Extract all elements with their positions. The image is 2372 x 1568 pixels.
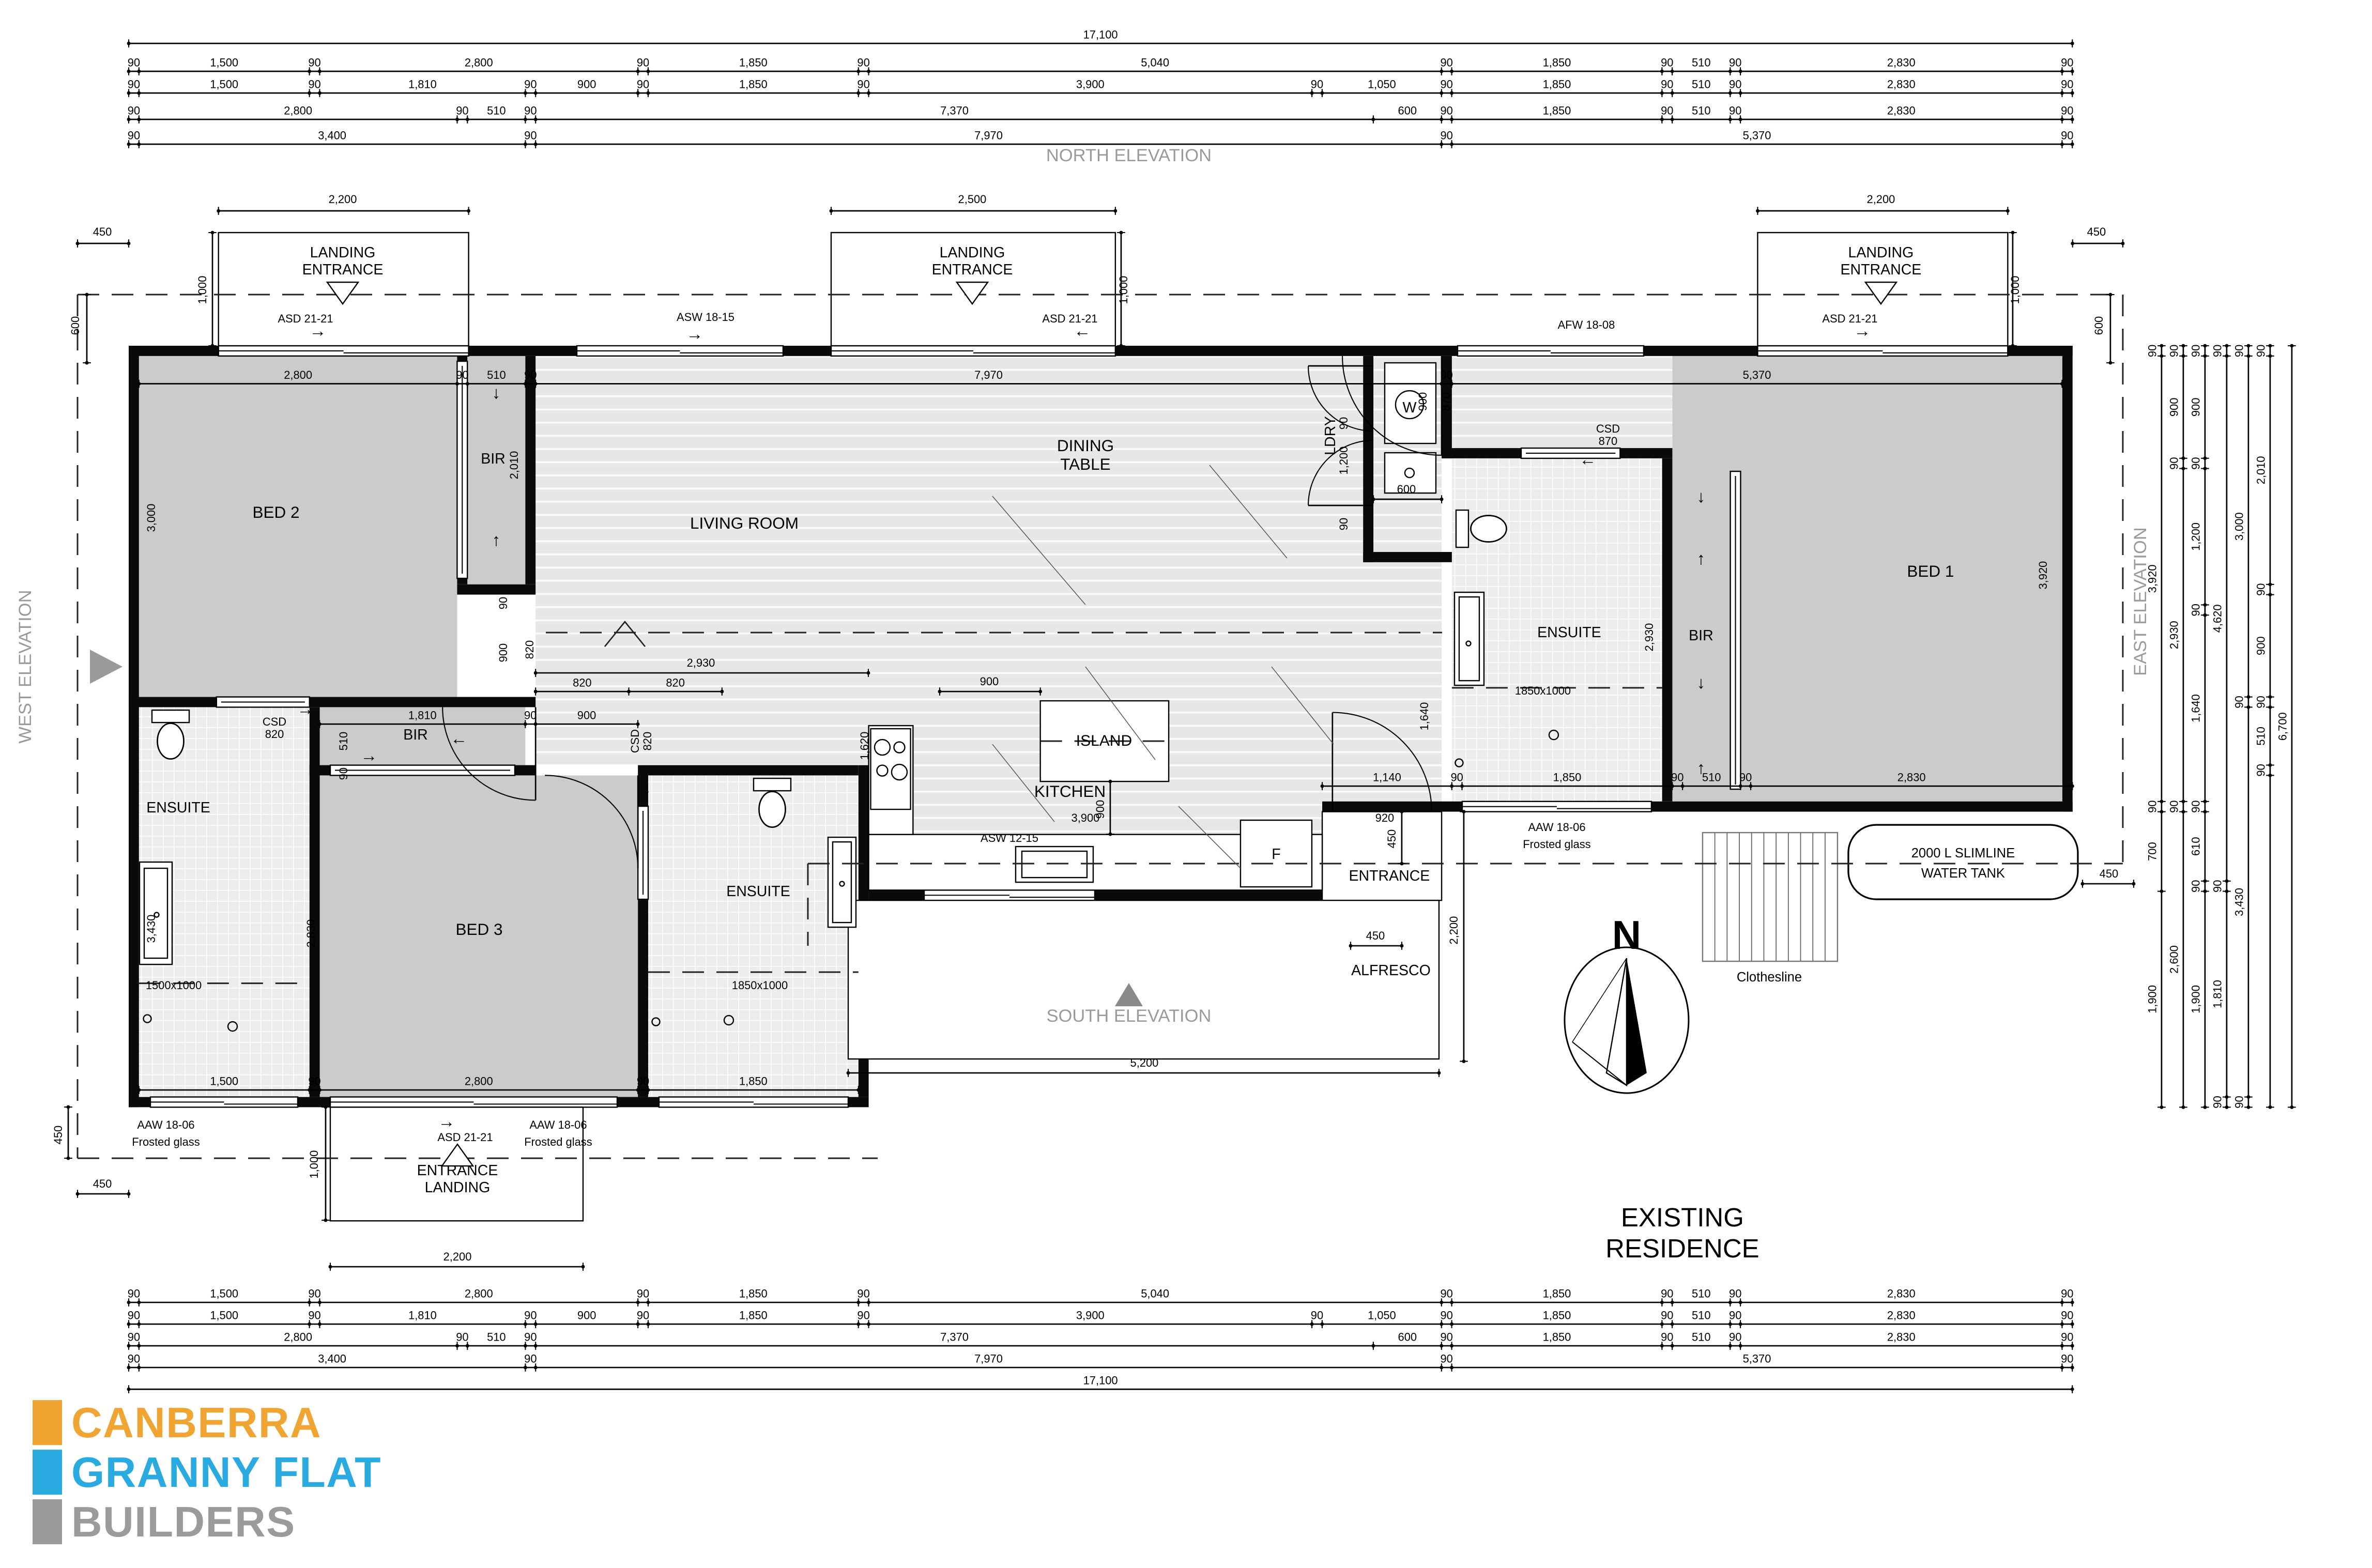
- dim-label: 900: [577, 78, 596, 90]
- water-tank-label: 2000 L SLIMLINE: [1911, 846, 2015, 860]
- annotation-label: ENTRANCE: [302, 262, 384, 278]
- carpet-floor: [139, 356, 457, 697]
- dim-label: 90: [2190, 604, 2202, 616]
- dim-label: 1,500: [210, 78, 238, 90]
- dim-label: 90: [1441, 78, 1453, 90]
- dim-label: 5,040: [1141, 1287, 1169, 1300]
- dim-label: 90: [456, 368, 468, 381]
- dim-label: 90: [524, 78, 537, 90]
- dim-label: 900: [2190, 398, 2202, 417]
- dim-label: 900: [577, 709, 596, 721]
- dim-label: 90: [128, 1309, 140, 1321]
- annotation-label: 900: [1094, 800, 1107, 819]
- door-code-asd2121-bottom: ASD 21-21: [437, 1131, 493, 1144]
- south-elevation-label: SOUTH ELEVATION: [1047, 1006, 1212, 1026]
- dim-label: 90: [857, 78, 869, 90]
- wall: [648, 765, 859, 776]
- entrance-slab: [1322, 812, 1442, 901]
- dim-label: 1,850: [739, 1074, 768, 1087]
- window-code-aaw1806-2: AAW 18-06: [529, 1118, 587, 1131]
- toilet-tank-ens2: [1456, 510, 1468, 547]
- dim-label: 90: [2061, 1287, 2073, 1300]
- logo-text-line3: BUILDERS: [71, 1498, 296, 1546]
- annotation-label: Frosted glass: [132, 1135, 200, 1148]
- dim-label: 600: [1398, 1330, 1417, 1343]
- dim-label: 90: [308, 1287, 320, 1300]
- dim-label: 90: [2061, 1309, 2073, 1321]
- dim-label: 7,970: [974, 368, 1003, 381]
- annotation-label: ↓: [492, 383, 500, 402]
- annotation-label: ↓: [1697, 487, 1705, 506]
- dim-label: 1,810: [408, 709, 437, 721]
- dim-label: 90: [308, 1074, 320, 1087]
- dim-label: 7,370: [940, 1330, 969, 1343]
- dim-label: 2,800: [465, 1074, 493, 1087]
- wall: [525, 356, 535, 585]
- dim-label: 90: [2168, 457, 2181, 469]
- dim-label: 90: [128, 1287, 140, 1300]
- logo-square-gray: [33, 1499, 62, 1544]
- annotation-label: 3,920: [2037, 561, 2049, 590]
- dim-label: 7,970: [974, 1352, 1003, 1365]
- annotation-label: 450: [1366, 929, 1385, 942]
- dim-label: 6,700: [2276, 712, 2289, 741]
- room-label-ensuite2: ENSUITE: [1537, 624, 1601, 641]
- annotation-label: 90: [337, 767, 350, 780]
- dim-label: 2,010: [2255, 456, 2268, 484]
- dim-label: 90: [524, 129, 537, 142]
- dim-label: 1,850: [739, 56, 768, 69]
- annotation-label: ↑: [1697, 758, 1705, 777]
- water-tank: [1848, 825, 2078, 899]
- dim-label: 90: [2190, 801, 2202, 813]
- dim-label: 1,900: [2146, 985, 2159, 1013]
- annotation-label: 900: [497, 643, 510, 663]
- dim-label: 90: [637, 78, 649, 90]
- annotation-label: 2,200: [329, 193, 357, 206]
- wall: [2062, 346, 2073, 812]
- dim-label: 90: [1441, 1330, 1453, 1343]
- dim-label: 1,500: [210, 56, 238, 69]
- annotation-label: 3,000: [145, 504, 158, 532]
- annotation-label: →: [1854, 321, 1871, 340]
- dim-label: 90: [2061, 56, 2073, 69]
- dim-label: 90: [2190, 880, 2202, 893]
- annotation-label: →: [360, 746, 377, 765]
- dim-label: 90: [1661, 1309, 1673, 1321]
- dim-label: 90: [2233, 696, 2246, 708]
- annotation-label: 90: [1337, 417, 1350, 429]
- dim-label: 90: [1311, 1309, 1323, 1321]
- room-label-kitchen: KITCHEN: [1034, 782, 1106, 801]
- vanity-ens3-basin: [833, 842, 851, 923]
- annotation-label: 1,200: [1337, 447, 1350, 475]
- water-tank-label2: WATER TANK: [1921, 866, 2005, 881]
- dim-label: 90: [456, 104, 468, 117]
- annotation-label: ←: [450, 729, 467, 748]
- room-label-laundry: LDRY: [1322, 416, 1339, 455]
- existing-residence-label2: RESIDENCE: [1605, 1234, 1759, 1263]
- dim-label: 90: [2255, 764, 2268, 776]
- clothesline: [1703, 833, 1838, 961]
- annotation-label: →: [309, 321, 326, 340]
- dim-label: 5,040: [1141, 56, 1169, 69]
- annotation-label: 1,000: [308, 1150, 320, 1179]
- dim-label: 4,620: [2211, 604, 2224, 633]
- dim-label: 90: [1661, 1287, 1673, 1300]
- dim-label: 90: [857, 56, 869, 69]
- annotation-label: →: [438, 1112, 455, 1131]
- annotation-label: 600: [2092, 316, 2105, 335]
- dim-label: 1,810: [408, 78, 437, 90]
- dim-label: 90: [308, 1309, 320, 1321]
- dim-label: 90: [1661, 78, 1673, 90]
- dim-label: 1,500: [210, 1287, 238, 1300]
- dim-label: 900: [577, 1309, 596, 1321]
- annotation-label: 1,000: [2009, 276, 2022, 304]
- dim-label: 510: [1692, 56, 1711, 69]
- window-code-asw1215: ASW 12-15: [981, 832, 1038, 844]
- dim-label: 90: [524, 709, 537, 721]
- east-elevation-label: EAST ELEVATION: [2131, 527, 2150, 676]
- dim-label: 510: [1692, 1287, 1711, 1300]
- vanity-ens2-basin: [1459, 597, 1479, 681]
- dim-label: 90: [2255, 345, 2268, 357]
- door-code-csd820-ens1: CSD: [263, 715, 286, 728]
- dim-label: 510: [487, 368, 506, 381]
- dim-label: 900: [2168, 398, 2181, 417]
- floor-plan-drawing: 17,100901,500902,800901,850905,040901,85…: [0, 0, 2372, 1568]
- annotation-label: 450: [52, 1126, 65, 1145]
- dim-label: 1,850: [1553, 771, 1582, 783]
- toilet-tank-ens3: [754, 778, 791, 791]
- dim-label: 90: [2233, 1096, 2246, 1108]
- toilet-bowl-ens2: [1471, 516, 1506, 542]
- wall: [1363, 356, 1373, 562]
- dim-label: 900: [2255, 636, 2268, 655]
- dim-label: 90: [857, 1309, 869, 1321]
- dim-label: 90: [637, 1287, 649, 1300]
- annotation-label: 2,830: [304, 919, 317, 948]
- logo-text-line2: GRANNY FLAT: [71, 1449, 381, 1496]
- dim-label: 820: [573, 676, 592, 689]
- compass-rose: [1565, 947, 1689, 1093]
- dim-label: 7,970: [974, 129, 1003, 142]
- dim-label: 1,200: [2190, 522, 2202, 551]
- wall: [129, 697, 535, 708]
- annotation-label: LANDING: [425, 1179, 491, 1196]
- dim-label: 90: [2211, 880, 2224, 893]
- dim-label: 2,930: [2168, 621, 2181, 649]
- dim-label: 1,850: [1543, 78, 1571, 90]
- dim-label: 90: [2255, 696, 2268, 708]
- dim-label: 90: [1311, 78, 1323, 90]
- west-elevation-triangle: [90, 650, 123, 684]
- dim-label: 90: [2061, 104, 2073, 117]
- window-code-asw1815: ASW 18-15: [677, 311, 734, 324]
- dim-label: 1,850: [1543, 104, 1571, 117]
- annotation-label: 450: [93, 225, 112, 238]
- annotation-label: 1500x1000: [146, 979, 202, 992]
- annotation-label: 2,200: [443, 1250, 472, 1263]
- annotation-label: 2,200: [1447, 916, 1460, 945]
- dim-label: 2,830: [1887, 78, 1916, 90]
- window-code-afw1808: AFW 18-08: [1558, 318, 1615, 331]
- annotation-label: 2,200: [1867, 193, 1895, 206]
- annotation-label: ENTRANCE: [932, 262, 1013, 278]
- annotation-label: 900: [980, 675, 999, 688]
- logo-text-line1: CANBERRA: [71, 1399, 322, 1447]
- dim-label: 1,850: [1543, 1309, 1571, 1321]
- dim-label: 90: [128, 1352, 140, 1365]
- annotation-label: 1,640: [1418, 702, 1431, 731]
- dim-label: 90: [637, 1074, 649, 1087]
- dim-label: 90: [128, 104, 140, 117]
- toilet-bowl-ens1: [157, 724, 183, 759]
- dim-label: 90: [128, 129, 140, 142]
- entrance-label: ENTRANCE: [1349, 868, 1430, 884]
- dim-label: 3,900: [1076, 78, 1105, 90]
- dim-label: 90: [2190, 345, 2202, 357]
- west-elevation-label: WEST ELEVATION: [16, 590, 35, 743]
- annotation-label: 820: [523, 640, 536, 659]
- annotation-label: ↓: [1697, 673, 1705, 692]
- dim-label: 90: [2146, 345, 2159, 357]
- dim-label: 90: [1661, 1330, 1673, 1343]
- dim-label: 1,140: [1373, 771, 1401, 783]
- annotation-label: Frosted glass: [1523, 838, 1590, 851]
- dim-label: 90: [1441, 368, 1453, 381]
- dim-label: 90: [2061, 1330, 2073, 1343]
- dim-label: 1,850: [1543, 1330, 1571, 1343]
- annotation-label: 2,500: [958, 193, 987, 206]
- dim-label: 90: [308, 56, 320, 69]
- existing-residence-label: EXISTING: [1621, 1203, 1744, 1232]
- dim-label: 17,100: [1083, 1374, 1118, 1387]
- annotation-label: ↓: [642, 778, 651, 797]
- dim-label: 2,800: [465, 56, 493, 69]
- tile-floor: [648, 775, 859, 1097]
- dim-label: 7,370: [940, 104, 969, 117]
- door-code-csd870: CSD: [1596, 422, 1620, 435]
- annotation-label: 450: [1385, 829, 1398, 849]
- annotation-label: 5,200: [1130, 1056, 1159, 1069]
- alfresco-slab: [848, 900, 1439, 1059]
- room-label-ensuite3: ENSUITE: [726, 883, 790, 900]
- dim-label: 90: [2061, 1352, 2073, 1365]
- dim-label: 90: [524, 368, 537, 381]
- dim-label: 90: [2211, 345, 2224, 357]
- dim-label: 510: [1692, 1330, 1711, 1343]
- alfresco-label: ALFRESCO: [1351, 962, 1431, 979]
- window-code-aaw1806-1: AAW 18-06: [137, 1118, 194, 1131]
- dim-label: 1,500: [210, 1074, 238, 1087]
- dim-label: 510: [1692, 78, 1711, 90]
- annotation-label: ←: [1074, 321, 1091, 340]
- logo-square-orange: [33, 1400, 62, 1445]
- annotation-label: 600: [69, 316, 82, 335]
- room-label-living: LIVING ROOM: [690, 514, 799, 532]
- dim-label: 90: [308, 78, 320, 90]
- wall: [1322, 802, 2073, 812]
- dim-label: 90: [1729, 56, 1741, 69]
- dim-label: 3,430: [2233, 888, 2246, 916]
- toilet-bowl-ens3: [759, 792, 785, 827]
- landing-entrance-right: LANDING: [1848, 244, 1914, 261]
- north-elevation-label: NORTH ELEVATION: [1046, 146, 1212, 165]
- dim-label: 1,850: [739, 1287, 768, 1300]
- dim-label: 2,600: [2168, 945, 2181, 974]
- robe-label-bir3: BIR: [403, 727, 428, 743]
- annotation-label: →: [297, 699, 314, 718]
- annotation-label: 1,000: [196, 276, 209, 304]
- dim-label: 90: [1441, 1309, 1453, 1321]
- annotation-label: ↑: [492, 530, 500, 549]
- toilet-tank-ens1: [152, 710, 189, 722]
- dim-label: 90: [128, 78, 140, 90]
- dim-label: 1,850: [1543, 1287, 1571, 1300]
- dim-label: 510: [487, 1330, 506, 1343]
- annotation-label: 870: [1599, 435, 1618, 448]
- wall: [1662, 458, 1673, 802]
- dim-label: 2,800: [284, 1330, 312, 1343]
- dim-label: 2,830: [1887, 56, 1916, 69]
- dim-label: 510: [1692, 104, 1711, 117]
- wall: [129, 346, 139, 1107]
- dim-label: 610: [2190, 837, 2202, 856]
- dim-label: 3,000: [2233, 512, 2246, 541]
- window-code-aaw1806-3: AAW 18-06: [1528, 821, 1585, 834]
- annotation-label: 600: [1397, 483, 1416, 496]
- annotation-label: ↑: [1697, 549, 1705, 568]
- robe-label-bir1: BIR: [481, 451, 506, 467]
- dim-label: 1,850: [739, 78, 768, 90]
- clothesline-label: Clothesline: [1737, 970, 1802, 985]
- annotation-label: 1,000: [1117, 276, 1130, 304]
- dim-label: 90: [1739, 771, 1752, 783]
- dim-label: 17,100: [1083, 28, 1118, 41]
- dim-label: 3,400: [318, 1352, 346, 1365]
- dim-label: 90: [524, 1352, 537, 1365]
- annotation-label: 900: [1416, 392, 1429, 411]
- dim-label: 2,800: [284, 104, 312, 117]
- room-label-ensuite1: ENSUITE: [146, 800, 210, 816]
- dim-label: 820: [666, 676, 685, 689]
- dim-label: 90: [456, 1330, 468, 1343]
- annotation-label: 2,010: [508, 451, 521, 480]
- logo-square-blue: [33, 1450, 62, 1495]
- annotation-label: →: [686, 324, 703, 343]
- dim-label: 2,830: [1897, 771, 1926, 783]
- dim-label: 90: [2061, 78, 2073, 90]
- landing-entrance-center: LANDING: [940, 244, 1005, 261]
- annotation-label: 510: [337, 732, 350, 751]
- dim-label: 700: [2146, 842, 2159, 861]
- dim-label: 5,370: [1743, 368, 1771, 381]
- wall: [1363, 552, 1452, 562]
- dim-label: 90: [1441, 1287, 1453, 1300]
- annotation-label: TABLE: [1060, 455, 1110, 473]
- annotation-label: 820: [641, 732, 654, 751]
- robe-label-bir2: BIR: [1689, 627, 1713, 644]
- annotation-label: 2,930: [687, 656, 715, 669]
- dim-label: 90: [2255, 583, 2268, 596]
- dim-label: 90: [2190, 457, 2202, 469]
- dim-label: 3,400: [318, 129, 346, 142]
- dim-label: 90: [1441, 56, 1453, 69]
- dim-label: 90: [1441, 1352, 1453, 1365]
- dim-label: 510: [487, 104, 506, 117]
- dim-label: 3,900: [1076, 1309, 1105, 1321]
- dim-label: 2,800: [284, 368, 312, 381]
- dim-label: 90: [637, 56, 649, 69]
- dim-label: 1,810: [408, 1309, 437, 1321]
- dim-label: 600: [1398, 104, 1417, 117]
- annotation-label: 870: [1440, 392, 1452, 411]
- annotation-label: 3,430: [145, 915, 158, 943]
- dim-label: 90: [637, 1309, 649, 1321]
- dim-label: 2,830: [1887, 1309, 1916, 1321]
- dim-label: 1,050: [1368, 1309, 1396, 1321]
- dim-label: 90: [524, 104, 537, 117]
- door-code-csd820-ens3: CSD: [629, 729, 641, 753]
- annotation-label: 450: [2100, 867, 2119, 880]
- dim-label: 90: [1671, 771, 1684, 783]
- annotation-label: 1850x1000: [732, 979, 788, 992]
- dim-label: 1,900: [2190, 985, 2202, 1013]
- annotation-label: 820: [265, 728, 284, 741]
- dim-label: 1,050: [1368, 78, 1396, 90]
- annotation-label: ENTRANCE: [1841, 262, 1922, 278]
- dim-label: 90: [1729, 1287, 1741, 1300]
- compass-north: N: [1612, 912, 1641, 958]
- dim-label: 5,370: [1743, 129, 1771, 142]
- annotation-label: ←: [1579, 450, 1596, 469]
- dim-label: 1,500: [210, 1309, 238, 1321]
- washer-label: W: [1402, 399, 1416, 416]
- dim-label: 90: [2146, 801, 2159, 813]
- dim-label: 90: [1661, 56, 1673, 69]
- room-label-bed2: BED 2: [252, 503, 299, 521]
- room-label-bed3: BED 3: [455, 920, 502, 939]
- dim-label: 90: [2211, 1096, 2224, 1108]
- dim-label: 1,850: [739, 1309, 768, 1321]
- annotation-label: Frosted glass: [524, 1135, 592, 1148]
- dim-label: 90: [2233, 345, 2246, 357]
- annotation-label: 1850x1000: [1515, 684, 1571, 697]
- dim-label: 1,810: [2211, 980, 2224, 1008]
- dim-label: 5,370: [1743, 1352, 1771, 1365]
- dim-label: 90: [857, 1287, 869, 1300]
- annotation-label: 90: [497, 597, 510, 609]
- dim-label: 90: [128, 56, 140, 69]
- dim-label: 90: [524, 1309, 537, 1321]
- annotation-label: 450: [93, 1177, 112, 1190]
- island-label: ISLAND: [1076, 732, 1132, 749]
- room-label-bed1: BED 1: [1907, 562, 1954, 580]
- wall: [457, 585, 535, 595]
- dim-label: 90: [2061, 129, 2073, 142]
- annotation-label: 1,620: [858, 732, 871, 760]
- dim-label: 90: [1729, 1309, 1741, 1321]
- dim-label: 90: [128, 1330, 140, 1343]
- dim-label: 2,800: [465, 1287, 493, 1300]
- annotation-label: 450: [2087, 225, 2106, 238]
- dim-label: 1,640: [2190, 694, 2202, 722]
- dim-label: 90: [1441, 129, 1453, 142]
- dim-label: 90: [524, 1330, 537, 1343]
- dim-label: 90: [1729, 78, 1741, 90]
